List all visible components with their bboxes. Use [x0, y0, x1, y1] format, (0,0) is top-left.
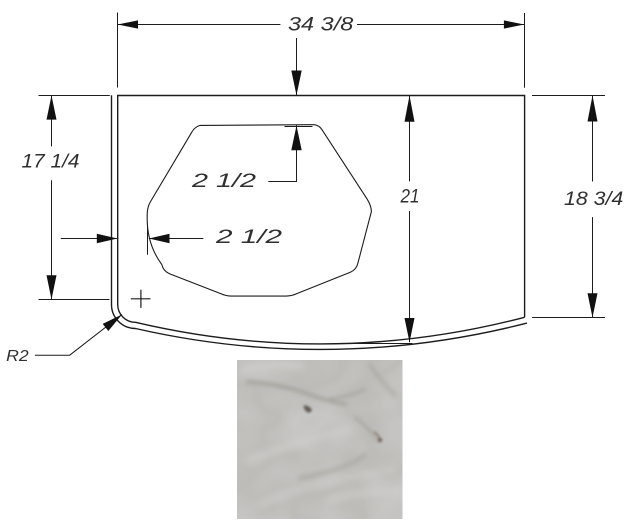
svg-text:17 1/4: 17 1/4 [22, 151, 80, 172]
svg-text:2 1/2: 2 1/2 [190, 171, 256, 192]
svg-text:21: 21 [400, 187, 420, 208]
svg-text:2 1/2: 2 1/2 [214, 227, 282, 248]
svg-text:34 3/8: 34 3/8 [288, 14, 354, 35]
svg-text:18 3/4: 18 3/4 [564, 189, 623, 210]
svg-text:R2: R2 [6, 348, 29, 365]
